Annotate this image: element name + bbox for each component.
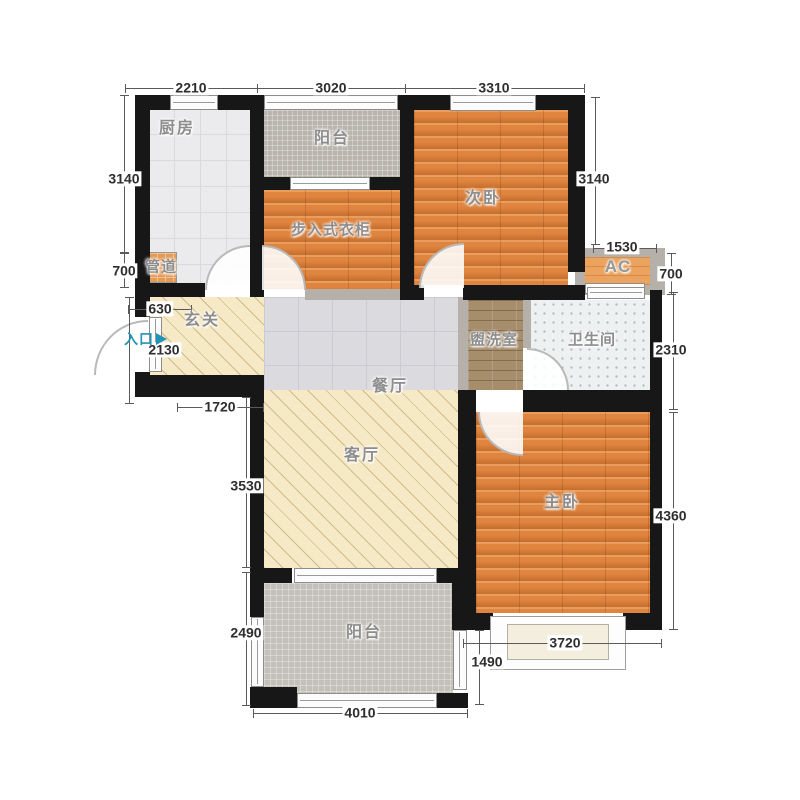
room-label-kitchen: 厨房: [159, 114, 195, 138]
wall-living-balcony-b: [437, 568, 458, 583]
floor-plan: 2210 3020 3310 3140 700 630 2130 1720 35…: [0, 0, 800, 800]
dim-master-height: 4360: [653, 508, 688, 523]
living-balcony-door: [294, 568, 437, 583]
bedroom2-window: [450, 95, 536, 111]
dining-floor: [264, 297, 458, 390]
dim-top-bedroom: 3310: [476, 80, 511, 95]
wall-master-south-a: [458, 613, 493, 630]
dim-ac-width: 1530: [604, 239, 639, 254]
dim-ac-height: 700: [657, 266, 684, 281]
dimtick-top-1: [257, 84, 258, 93]
room-label-dining: 餐厅: [372, 372, 408, 396]
room-label-entry-hall: 玄关: [184, 306, 220, 330]
dimtick-top-2: [405, 84, 406, 93]
dim-entry-width: 1720: [202, 399, 237, 414]
dining-washroom-wall: [458, 297, 468, 390]
dim-right-bedroom: 3140: [576, 171, 611, 186]
closet-balcony-window: [290, 177, 370, 190]
dim-bay-window: 3720: [547, 635, 582, 650]
room-label-bathroom: 卫生间: [568, 329, 616, 350]
kitchen-window: [170, 95, 218, 110]
balcony-right-window: [453, 630, 467, 690]
entrance-marker: 入口: [124, 329, 167, 349]
room-label-duct: 管道: [145, 256, 177, 277]
room-label-balcony-top: 阳台: [314, 124, 350, 148]
washroom-bathroom-wall: [523, 300, 531, 348]
wall-entry-south: [135, 375, 264, 397]
dim-balcony-window: 1490: [469, 654, 504, 669]
dim-left-duct: 700: [110, 263, 137, 278]
room-label-ac: AC: [605, 257, 632, 277]
wall-living-balcony-a: [264, 568, 292, 583]
room-label-second-bedroom: 次卧: [465, 184, 501, 208]
dim-top-balcony: 3020: [313, 80, 348, 95]
dim-left-kitchen: 3140: [106, 171, 141, 186]
bathroom-window: [587, 287, 645, 299]
entrance-arrow-icon: [156, 333, 167, 345]
room-label-washroom: 盥洗室: [470, 329, 518, 350]
wall-kitchen-south: [135, 283, 205, 297]
dim-bath-height: 2310: [653, 342, 688, 357]
entrance-label: 入口: [124, 329, 154, 349]
dim-balcony-height: 2490: [228, 625, 263, 640]
room-label-balcony-bottom: 阳台: [346, 618, 382, 642]
wall-balcony-left: [250, 583, 264, 617]
room-label-master-bedroom: 主卧: [544, 488, 580, 512]
dim-top-kitchen: 2210: [173, 80, 208, 95]
room-label-living: 客厅: [344, 441, 380, 465]
dim-balcony-width: 4010: [342, 705, 377, 720]
dimline-entry-height: [129, 297, 130, 404]
wall-bedroom2-south-b: [463, 285, 585, 300]
wall-bedroom2-west: [400, 108, 414, 300]
closet-sill: [305, 289, 402, 300]
balcony-top-window: [264, 95, 398, 110]
dim-entry-door: 630: [146, 301, 173, 316]
wall-balcony-closet-a: [262, 177, 290, 190]
wall-master-south-b: [623, 613, 662, 630]
wall-balcony-se-corner: [437, 693, 468, 708]
dim-living-height: 3530: [228, 478, 263, 493]
wall-balcony-sw-corner: [250, 687, 297, 708]
wall-bathroom-south: [523, 390, 662, 412]
room-label-walkin-closet: 步入式衣柜: [291, 219, 371, 240]
wall-balcony-closet-b: [370, 177, 402, 190]
living-floor: [264, 390, 460, 568]
